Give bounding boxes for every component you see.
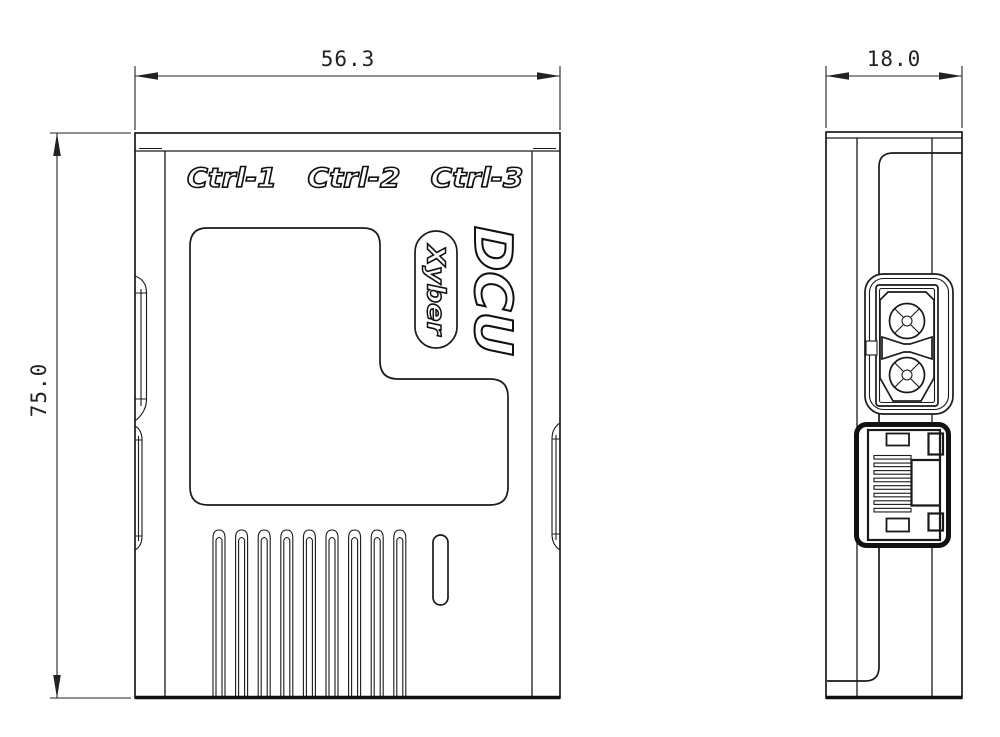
port-label-ctrl-2: Ctrl-2 <box>308 163 401 194</box>
dimension-side-width: 18.0 <box>826 47 962 128</box>
front-height-value: 75.0 <box>27 363 51 418</box>
connector-side-key <box>866 341 877 355</box>
side-view <box>826 132 962 698</box>
dimension-front-width: 56.3 <box>135 47 560 130</box>
pin-contact-upper <box>890 304 925 339</box>
brand-badge: Xyber <box>415 231 457 348</box>
dimension-front-height: 75.0 <box>27 133 131 698</box>
enclosure-outline <box>135 133 560 698</box>
front-view: Ctrl-1 Ctrl-2 Ctrl-3 Xyber DCU <box>135 133 560 698</box>
dcu-dimension-drawing: 56.3 75.0 18.0 Ctrl-1 Ctrl-2 Ctrl-3 <box>0 0 1000 737</box>
rj45-ethernet-port <box>857 425 949 546</box>
enclosure-outline <box>826 132 962 698</box>
front-width-value: 56.3 <box>321 47 376 71</box>
port-label-ctrl-3: Ctrl-3 <box>431 163 524 194</box>
side-width-value: 18.0 <box>867 47 922 71</box>
brand-label: Xyber <box>422 243 451 337</box>
pin-contact-lower <box>890 358 925 393</box>
dimension-lines <box>135 66 560 130</box>
xt30-power-connector <box>865 274 953 414</box>
dimension-lines <box>50 133 131 698</box>
port-label-ctrl-1: Ctrl-1 <box>187 163 277 194</box>
product-label: DCU <box>462 226 522 356</box>
technical-drawing-page: 56.3 75.0 18.0 Ctrl-1 Ctrl-2 Ctrl-3 <box>0 0 1000 737</box>
